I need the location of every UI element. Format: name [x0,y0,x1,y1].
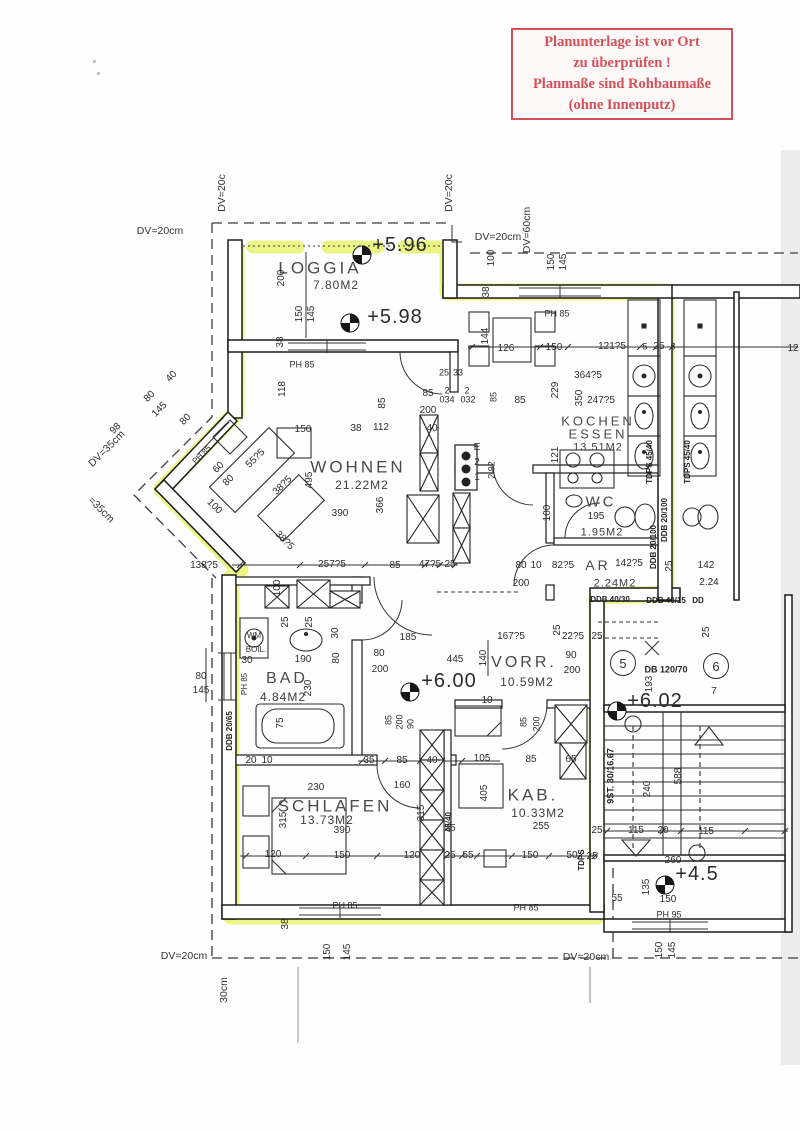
dimension-label: BOIL. [246,646,266,654]
dimension-label: 150 [547,254,557,271]
dimension-label: 135 [642,879,652,896]
staircase [604,712,785,861]
dimension-label: 25 [444,824,455,834]
dimension-label: 145 [343,944,353,961]
dimension-label: 90 [407,719,416,729]
dimension-label: 032 [460,396,475,405]
dimension-label: 25 [591,632,602,642]
room-area-label: 21.22M2 [335,479,389,491]
dimension-label: 25 [305,616,315,627]
dimension-label: 230 [304,680,314,697]
elevation-benchmark-icon [401,683,420,702]
dimension-label: 25 [439,369,449,378]
dimension-label: 193 [645,676,655,693]
dimension-label: 1 [474,473,480,483]
dimension-label: 150 [655,942,665,959]
dimension-label: 150 [546,343,563,353]
dimension-label: 25 [444,851,455,861]
dimension-label: 200 [396,714,405,729]
dimension-label: 120 [404,851,421,861]
dimension-label: 144 [481,328,491,345]
dimension-label: 40 [426,756,437,766]
room-label: SCHLAFEN [278,798,393,815]
dimension-label: 10 [261,756,272,766]
dimension-label: 25 [653,342,664,352]
dimension-label: 85 [490,392,499,402]
scan-artifacts [298,967,590,1043]
dimension-label: 85 [385,715,394,725]
dimension-label: 200 [277,270,287,287]
dimension-label: PH 85 [513,904,538,913]
dimension-label: 145 [668,942,678,959]
elevation-label: +6.00 [421,671,477,691]
dimension-label: 315 [417,805,427,822]
dimension-label: PH 95 [656,911,681,920]
elevation-label: +4.5 [675,864,718,884]
dimension-label: 85 [514,396,525,406]
scanned-floorplan-page: Planunterlage ist vor Ort zu überprüfen … [0,0,800,1130]
dimension-label: 145 [307,306,317,323]
beam-label: DDB 40/30 [590,596,630,604]
dimension-label: 200 [513,579,530,589]
dimension-label: 260 [665,856,682,866]
dimension-label: 118 [278,381,288,397]
dv-note-label: 30cm [219,977,230,1003]
elevation-benchmark-icon [341,314,360,333]
room-area-label: 7.80M2 [313,279,359,291]
beam-label: TDPS [578,849,586,870]
dimension-label: 85 [389,561,400,571]
dimension-label: 5 [670,343,675,352]
dimension-label: 20 [245,756,256,766]
room-label: BAD [266,671,308,687]
dimension-label: 80 [373,649,384,659]
stamp-line: (ohne Innenputz) [569,95,676,116]
dimension-label: 150 [522,851,539,861]
dimension-label: 25 [665,560,675,571]
dimension-label: 82?5 [552,561,574,571]
dimension-label: 38 [281,918,291,929]
dimension-label: 80 [515,561,526,571]
room-area-label: 2.24M2 [594,579,637,590]
dimension-label: 126 [498,344,515,354]
stamp-line: Planmaße sind Rohbaumaße [533,74,711,95]
dimension-label: 240 [643,781,653,798]
dimension-label: 190 [295,655,312,665]
dimension-label: 85 [520,717,529,727]
room-area-label: 4.84M2 [260,691,306,703]
dimension-label: 85 [422,389,433,399]
dimension-label: 30 [241,656,252,666]
dimension-label: 405 [480,785,490,802]
dimension-label: 85 [378,397,388,408]
dimension-label: 390 [334,826,351,836]
room-area-label: 1.95M2 [581,528,624,539]
dimension-label: 121?5 [598,342,626,352]
approval-stamp: Planunterlage ist vor Ort zu überprüfen … [511,28,733,120]
dimension-label: 138?5 [190,561,218,571]
dimension-label: 38 [482,286,492,297]
dimension-label: 2 [474,458,480,468]
elevation-label: +5.98 [367,307,423,327]
dimension-label: 30 [331,627,341,638]
dimension-label: 100 [543,505,553,522]
dimension-label: 350 [575,390,585,407]
elevation-benchmark-icon [353,246,372,265]
dimension-label: 85 [525,755,536,765]
dimension-label: 115 [698,827,714,837]
beam-label: DD [692,597,704,605]
dimension-label: 50 [566,851,577,861]
dimension-label: 100 [487,250,497,267]
dimension-label: PH 85 [544,310,569,319]
dv-note-label: DV=20cm [475,232,521,243]
dimension-label: 25 [586,852,597,862]
dimension-label: 40 [426,424,437,434]
stamp-line: Planunterlage ist vor Ort [544,32,700,53]
stamp-line: zu überprüfen ! [573,53,670,74]
dimension-label: 247?5 [587,396,615,406]
dimension-label: 160 [394,781,411,791]
room-area-label: 10.59M2 [500,676,554,688]
beam-label: 9ST. 30/16.67 [607,748,616,804]
dimension-label: 229 [551,382,561,399]
elevation-benchmark-icon [608,702,627,721]
beam-label: DDB 20/100 [661,498,669,542]
dv-note-label: DV=20c [444,174,455,212]
room-label: LOGGIA [278,260,361,277]
dv-note-label: DV=20cm [161,951,207,962]
elevation-label: +5.96 [372,235,428,255]
dimension-label: 142?5 [615,559,643,569]
room-label: ESSEN [568,428,627,441]
dv-note-label: DV=20cm [137,226,183,237]
dimension-label: 5 [642,343,647,352]
dimension-label: WM [247,632,261,640]
dimension-label: 200 [533,716,542,731]
dimension-label: 25 [444,560,455,570]
dimension-label: 200 [564,666,581,676]
beam-label: DDB 20/100 [650,525,658,569]
dimension-label: 150 [295,306,305,323]
beam-label: DDB 20/65 [226,711,234,751]
dimension-label: 25 [281,616,291,627]
electric-panel-icon [462,452,471,487]
dimension-label: 255 [533,822,550,832]
dimension-label: 25 [702,626,712,637]
dimension-label: PH 85 [332,902,357,911]
dimension-label: 2.24 [699,578,718,588]
dimension-label: 315 [279,812,289,829]
dimension-label: 90 [565,651,576,661]
dimension-label: 150 [323,944,333,961]
dv-note-label: DV=60cm [522,207,533,253]
elevation-benchmark-icon [656,876,675,895]
dimension-label: 445 [447,655,464,665]
dimension-label: E [474,443,481,453]
dimension-label: 12 [787,344,798,354]
dimension-label: 150 [660,895,677,905]
dimension-label: 65 [565,755,576,765]
dimension-label: 2.92 [488,461,497,479]
dimension-label: 150 [334,851,351,861]
dimension-label: 115 [628,826,644,836]
dimension-label: PH 85 [241,673,249,695]
dv-note-label: DV=20c [217,174,228,212]
dimension-label: 25 [553,624,563,635]
room-area-label: 10.33M2 [511,807,565,819]
dimension-label: 390 [332,509,349,519]
dimension-label: 185 [400,633,417,643]
dimension-label: 588 [674,768,684,785]
beam-label: DB 120/70 [644,666,687,675]
dimension-label: 35 [363,756,374,766]
elevation-label: +6.02 [627,691,683,711]
dimension-label: 38 [276,336,286,347]
dimension-label: 85 [396,756,407,766]
room-label: KAB. [508,787,559,804]
room-label: VORR. [491,655,557,671]
dimension-label: 22?5 [562,632,584,642]
dimension-label: 33 [453,369,463,378]
dimension-label: 10 [481,696,492,706]
dimension-label: 100 [273,580,283,597]
room-label: WC [586,495,617,510]
dimension-label: 55 [462,851,473,861]
dimension-label: 7 [711,687,717,697]
dimension-label: PH 85 [289,361,314,370]
dimension-label: 105 [474,754,491,764]
dimension-label: 366 [376,497,386,514]
dimension-label: 38 [350,424,361,434]
dimension-label: 20 [657,826,668,836]
dimension-label: 364?5 [574,371,602,381]
dimension-label: 120 [265,850,282,860]
dimension-label: 142 [698,561,715,571]
dimension-label: 150 [295,425,312,435]
beam-label: DDB 40/15 [646,597,686,605]
dimension-label: 230 [308,783,325,793]
dv-note-label: DV=20cm [563,952,609,963]
room-area-label: 13.51M2 [573,443,623,454]
dimension-label: 10 [530,561,541,571]
dimension-label: 80 [332,652,342,663]
beam-label: TDPS 45/40 [646,440,654,484]
circled-number: 6 [703,653,729,679]
room-label: AR [585,558,610,572]
circled-number: 5 [610,650,636,676]
dimension-label: 55 [611,894,622,904]
room-label: WOHNEN [310,459,405,476]
dimension-label: 80 [195,672,206,682]
dimension-label: 75 [276,717,286,728]
dimension-label: 47?5 [419,560,441,570]
dimension-label: 200 [420,406,437,416]
dimension-label: 121 [551,447,561,464]
dimension-label: 257?5 [318,560,346,570]
dimension-label: 140 [479,650,489,667]
dimension-label: 25 [591,826,602,836]
beam-label: TDPS 45/40 [684,440,692,484]
dimension-label: 034 [439,396,454,405]
dimension-label: 145 [193,686,210,696]
dimension-label: 195 [588,512,605,522]
dimension-label: 200 [372,665,389,675]
dimension-label: 167?5 [497,632,525,642]
dimension-label: 145 [559,254,569,271]
dimension-label: 495 [305,472,315,489]
dimension-label: 112 [373,423,389,433]
